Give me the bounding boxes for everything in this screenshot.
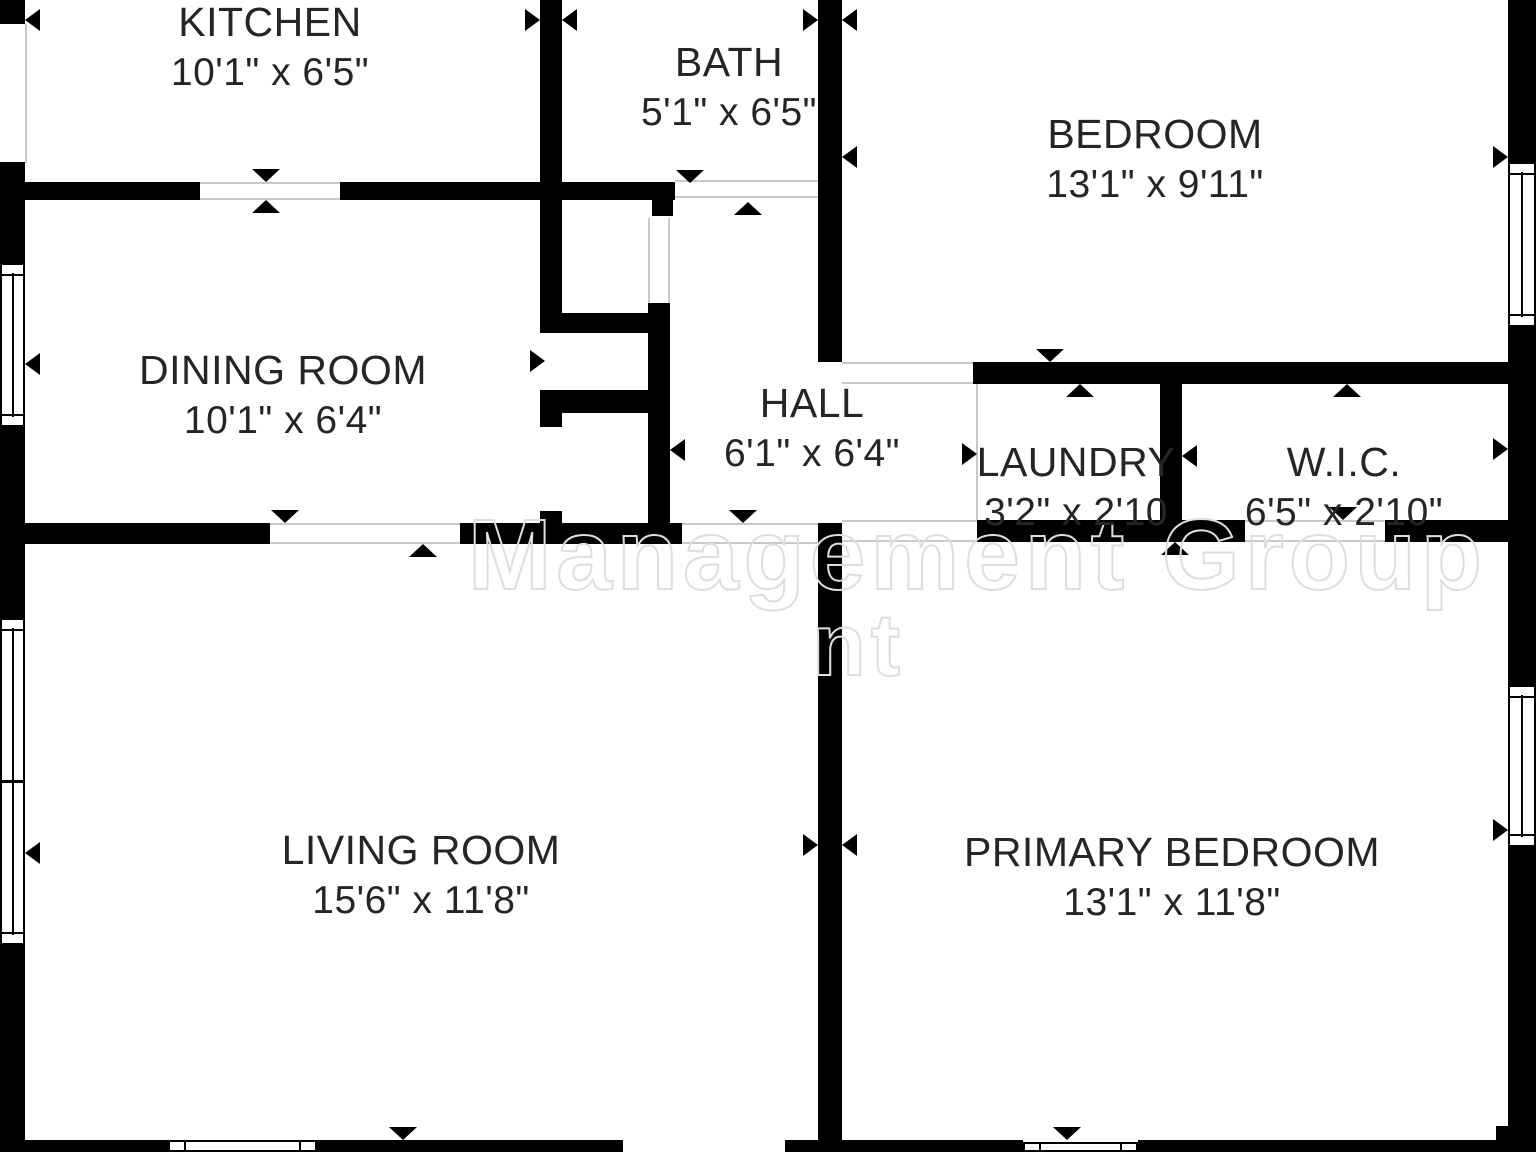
window-frame: [299, 1142, 301, 1150]
opening-edge-line: [200, 182, 340, 184]
window-frame: [2, 274, 23, 276]
door-arrow-icon: [1036, 349, 1064, 362]
window-icon: [0, 618, 25, 945]
window-frame: [2, 629, 23, 631]
door-arrow-icon: [271, 510, 299, 523]
window-icon: [1023, 1142, 1138, 1152]
door-arrow-icon: [1493, 146, 1508, 168]
wall: [25, 523, 270, 544]
room-dims: 15'6" x 11'8": [312, 880, 530, 923]
wall: [340, 182, 675, 200]
room-label: LIVING ROOM: [282, 828, 561, 873]
door-arrow-icon: [562, 9, 577, 31]
door-arrow-icon: [389, 1127, 417, 1140]
door-opening: [648, 218, 670, 303]
window-icon: [168, 1140, 317, 1152]
watermark-fragment: nt: [812, 594, 905, 696]
door-arrow-icon: [962, 443, 977, 465]
room-dims: 3'2" x 2'10: [984, 492, 1168, 535]
window-frame: [1510, 314, 1534, 316]
wall: [973, 362, 1536, 384]
wall: [0, 945, 25, 1152]
window-frame: [1120, 1144, 1122, 1150]
wall: [648, 303, 670, 523]
room-dims: 10'1" x 6'4": [184, 400, 382, 443]
door-opening: [200, 182, 340, 200]
wall: [317, 1140, 623, 1152]
opening-edge-line: [648, 218, 650, 303]
window-icon: [1508, 162, 1536, 327]
door-arrow-icon: [670, 439, 685, 461]
wall: [818, 0, 842, 362]
window-frame: [1510, 173, 1534, 175]
room-dims: 5'1" x 6'5": [641, 92, 817, 135]
door-arrow-icon: [409, 544, 437, 557]
wall: [0, 0, 25, 24]
wall: [652, 200, 673, 216]
door-arrow-icon: [842, 9, 857, 31]
door-arrow-icon: [803, 834, 818, 856]
room-label: BATH: [675, 40, 783, 85]
wall: [1508, 0, 1536, 162]
door-arrow-icon: [842, 834, 857, 856]
room-label: HALL: [760, 381, 865, 426]
opening-edge-line: [668, 218, 670, 303]
room-label: DINING ROOM: [139, 348, 427, 393]
room-label: W.I.C.: [1287, 440, 1402, 485]
door-arrow-icon: [676, 170, 704, 183]
window-frame: [2, 414, 23, 416]
room-label: LAUNDRY: [977, 440, 1176, 485]
room-label: BEDROOM: [1047, 112, 1262, 157]
wall: [0, 162, 25, 263]
window-mullion: [1521, 695, 1523, 837]
window-frame: [184, 1142, 186, 1150]
opening-edge-line: [675, 196, 818, 198]
wall: [0, 1140, 168, 1152]
door-arrow-icon: [1333, 384, 1361, 397]
window-icon: [1508, 685, 1536, 847]
door-arrow-icon: [252, 169, 280, 182]
opening-edge-line: [25, 24, 27, 163]
door-arrow-icon: [1182, 445, 1197, 467]
floor-plan: Management Group nt KITCHEN10'1" x 6'5"B…: [0, 0, 1536, 1152]
room-dims: 13'1" x 9'11": [1046, 164, 1264, 207]
door-arrow-icon: [803, 9, 818, 31]
opening-edge-line: [270, 523, 460, 525]
window-frame: [1510, 696, 1534, 698]
wall: [1508, 847, 1536, 1152]
door-arrow-icon: [1493, 819, 1508, 841]
room-label: PRIMARY BEDROOM: [964, 830, 1380, 875]
wall: [25, 182, 200, 200]
window-frame: [1510, 834, 1534, 836]
wall: [1496, 1126, 1536, 1152]
door-arrow-icon: [530, 350, 545, 372]
room-dims: 13'1" x 11'8": [1063, 882, 1281, 925]
door-opening: [270, 523, 460, 544]
door-arrow-icon: [252, 200, 280, 213]
door-arrow-icon: [1493, 438, 1508, 460]
window-frame: [2, 932, 23, 934]
wall: [1138, 1140, 1536, 1152]
door-arrow-icon: [1053, 1127, 1081, 1140]
door-arrow-icon: [842, 146, 857, 168]
room-dims: 10'1" x 6'5": [171, 52, 369, 95]
wall: [0, 427, 25, 618]
wall: [540, 0, 562, 313]
door-arrow-icon: [525, 9, 540, 31]
door-arrow-icon: [25, 842, 40, 864]
door-arrow-icon: [734, 202, 762, 215]
room-label: KITCHEN: [178, 0, 361, 45]
window-mullion: [1521, 172, 1523, 317]
room-dims: 6'1" x 6'4": [724, 433, 900, 476]
window-icon: [0, 263, 25, 427]
room-dims: 6'5" x 2'10": [1245, 492, 1443, 535]
door-arrow-icon: [25, 9, 40, 31]
wall: [540, 413, 562, 427]
door-arrow-icon: [1066, 384, 1094, 397]
door-arrow-icon: [25, 353, 40, 375]
window-frame: [1039, 1144, 1041, 1150]
window-frame: [2, 780, 23, 783]
window-mullion: [12, 273, 14, 417]
opening-edge-line: [842, 362, 973, 364]
